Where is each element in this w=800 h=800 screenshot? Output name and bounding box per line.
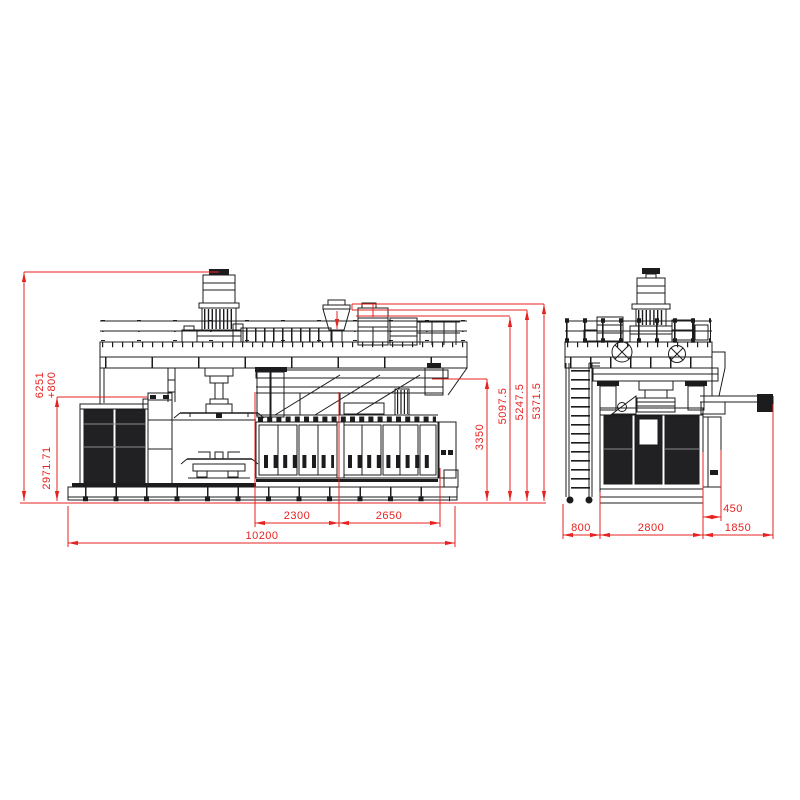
side-cabinet	[703, 417, 721, 487]
dim-total-height: 6251	[34, 372, 46, 398]
dim-conveyor-offset: 450	[723, 503, 743, 515]
dim-ladder-depth: 800	[571, 522, 591, 534]
end-platform-railing	[565, 321, 712, 369]
dim-body-width: 2800	[638, 522, 664, 534]
dim-span-b: 2650	[376, 510, 402, 522]
discharge-conveyor	[700, 352, 773, 414]
dim-span-a: 2300	[284, 510, 310, 522]
end-view	[565, 268, 773, 504]
blow-molding-machine-drawing: 6251 +800 2971.71 3350 5097.5 5247.5 537…	[0, 0, 800, 800]
guard-cabinet	[80, 404, 148, 487]
end-clamp-unit	[593, 368, 718, 414]
dim-height-suffix: +800	[46, 372, 58, 399]
dim-guard-height: 2971.71	[41, 446, 53, 489]
dim-clamp-height: 3350	[474, 424, 486, 450]
access-ladder	[566, 363, 600, 504]
cabinet-doors	[256, 422, 456, 478]
die-head	[168, 368, 264, 418]
dim-total-length: 10200	[245, 530, 278, 542]
control-tower	[143, 393, 256, 487]
dim-level-low: 5097.5	[497, 388, 509, 425]
dim-conveyor-span: 1850	[725, 522, 751, 534]
end-base	[600, 489, 703, 503]
clamp-frame	[255, 363, 448, 419]
dim-level-mid: 5247.5	[514, 384, 526, 421]
dim-level-top: 5371.5	[531, 383, 543, 420]
service-cart	[181, 452, 258, 478]
extruder-barrel	[233, 324, 331, 342]
technical-drawing-page: 6251 +800 2971.71 3350 5097.5 5247.5 537…	[0, 0, 800, 800]
end-guard-doors	[600, 408, 703, 489]
drive-wheels	[612, 342, 686, 363]
